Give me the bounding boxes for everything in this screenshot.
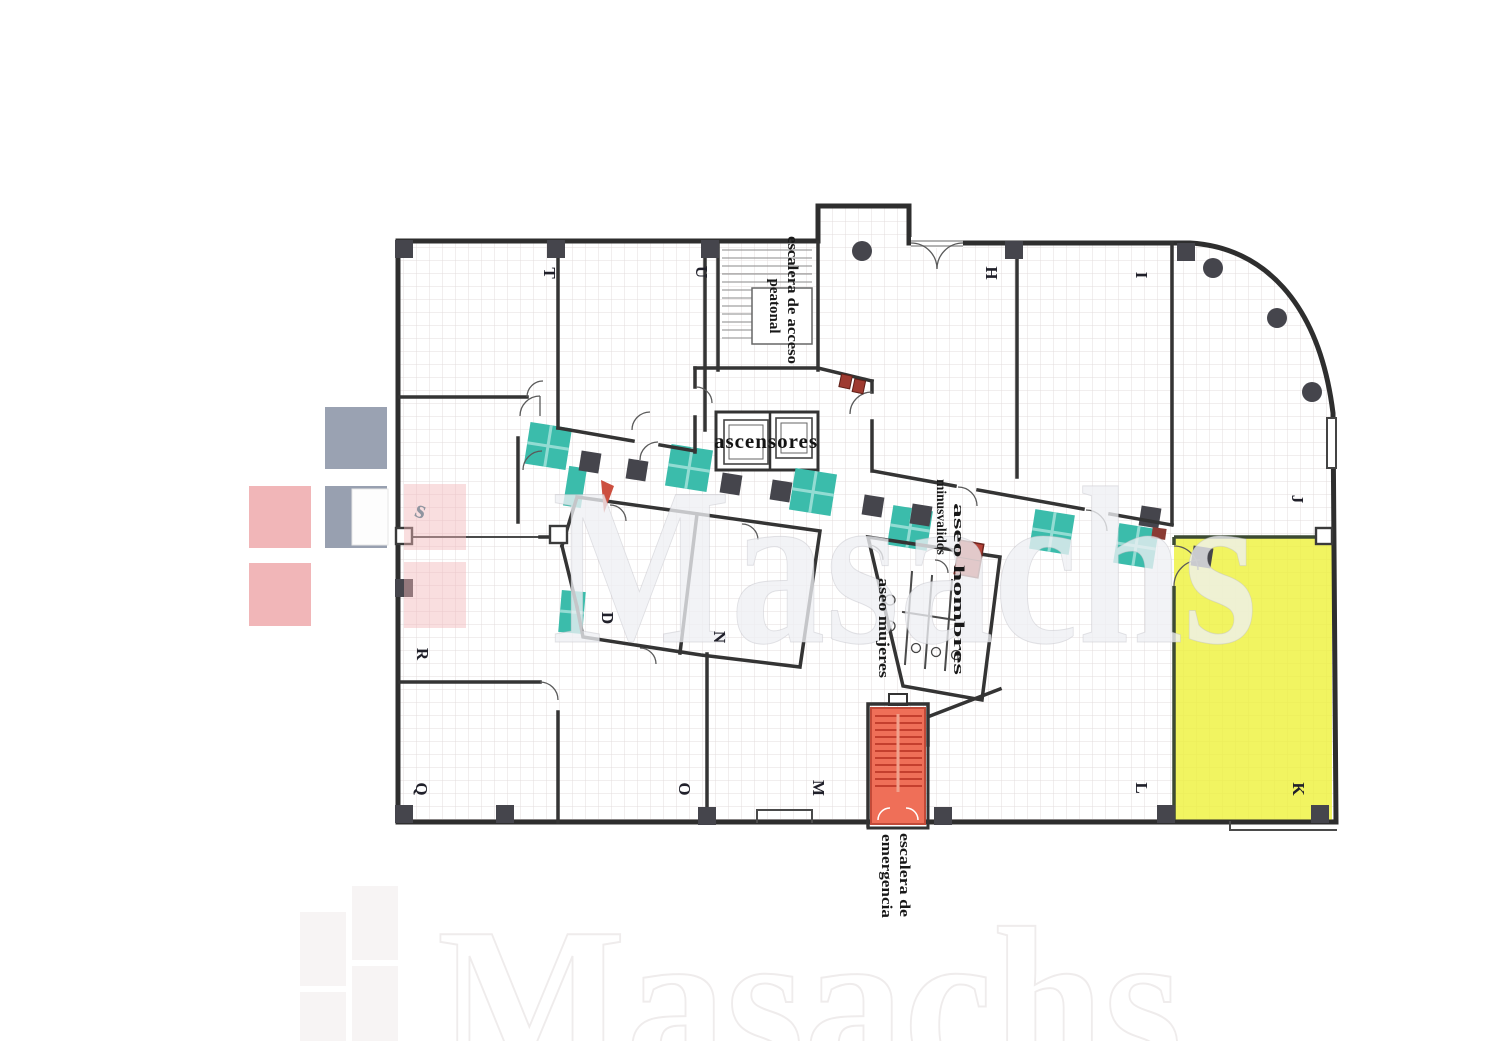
room-label-l: L xyxy=(1132,782,1151,793)
room-label-k: K xyxy=(1289,782,1308,796)
logo-square-white-inset xyxy=(352,489,388,545)
emergency-stairs-label-line1: escalera de xyxy=(896,833,912,917)
room-label-u: U xyxy=(692,266,711,278)
access-stairs-label-line2: peatonal xyxy=(766,278,782,333)
room-label-n: N xyxy=(710,631,729,644)
logo-square-gray-top xyxy=(325,407,387,469)
room-label-m: M xyxy=(809,780,828,796)
room-label-q: Q xyxy=(412,782,431,795)
room-label-h: H xyxy=(982,266,1001,279)
floor-plan-page: Masachs xyxy=(0,0,1500,1041)
room-label-t: T xyxy=(540,267,559,279)
window-right-wall xyxy=(1327,418,1336,468)
watermark-bottom-text: Masachs xyxy=(437,883,1182,1041)
emergency-staircase xyxy=(868,704,928,828)
watermark-center-text: Masachs xyxy=(552,441,1257,691)
womens-wc-label: aseo mujeres xyxy=(875,578,891,678)
disabled-wc-label: minusvalidos xyxy=(934,479,949,555)
room-label-j: J xyxy=(1288,495,1307,504)
floor-plan-drawing: Masachs xyxy=(0,0,1500,1041)
room-label-o: O xyxy=(675,782,694,795)
access-stairs-label-line1: escalera de acceso xyxy=(784,236,800,364)
elevators-label: ascensores xyxy=(714,429,818,453)
mens-wc-label: aseo hombres xyxy=(950,503,966,675)
emergency-stairs-label-line2: emergencia xyxy=(878,834,894,919)
room-label-r: R xyxy=(413,648,432,661)
room-label-i: I xyxy=(1132,272,1151,279)
room-label-d: D xyxy=(598,612,617,624)
